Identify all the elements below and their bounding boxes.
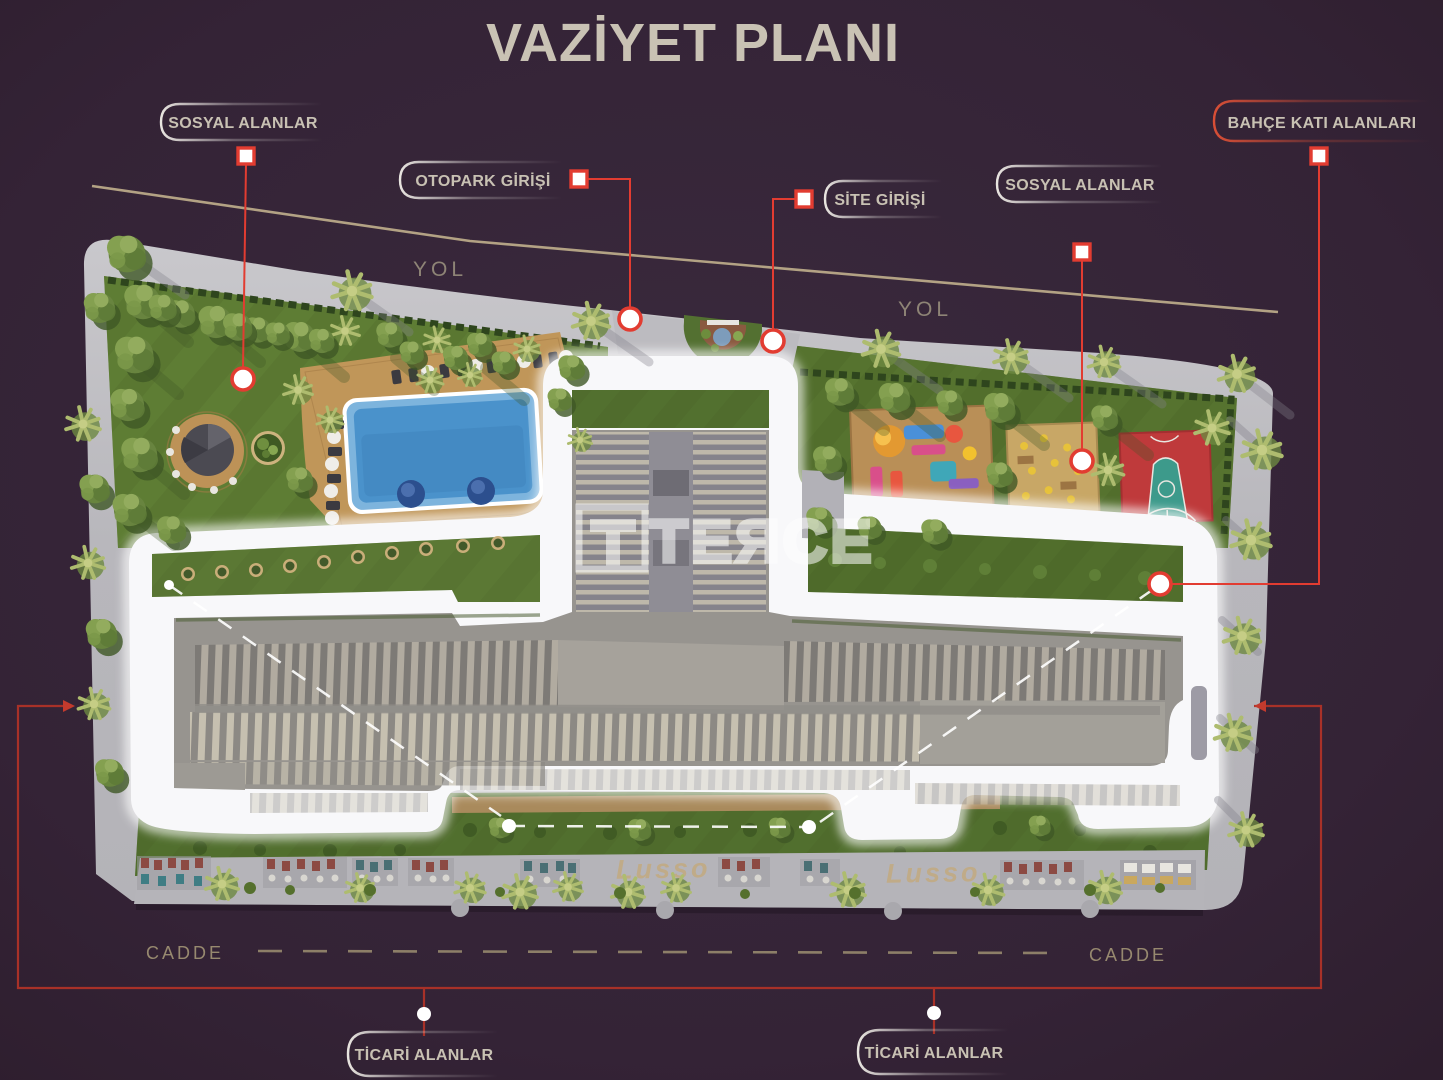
svg-text:SİTE GİRİŞİ: SİTE GİRİŞİ bbox=[834, 191, 925, 209]
svg-text:Lusso: Lusso bbox=[886, 857, 981, 889]
svg-text:TİCARİ ALANLAR: TİCARİ ALANLAR bbox=[355, 1046, 494, 1064]
svg-text:TEЯCE: TEЯCE bbox=[650, 508, 875, 575]
svg-text:OTOPARK GİRİŞİ: OTOPARK GİRİŞİ bbox=[415, 172, 550, 190]
svg-text:YOL: YOL bbox=[898, 298, 952, 321]
svg-text:Lusso: Lusso bbox=[616, 853, 711, 885]
svg-text:TİCARİ ALANLAR: TİCARİ ALANLAR bbox=[865, 1044, 1004, 1062]
svg-text:CADDE: CADDE bbox=[146, 943, 224, 963]
svg-text:VAZİYET PLANI: VAZİYET PLANI bbox=[486, 13, 900, 73]
svg-text:YOL: YOL bbox=[413, 258, 467, 281]
svg-text:BAHÇE KATI ALANLARI: BAHÇE KATI ALANLARI bbox=[1228, 115, 1417, 132]
svg-text:SOSYAL ALANLAR: SOSYAL ALANLAR bbox=[168, 115, 318, 132]
svg-text:SOSYAL ALANLAR: SOSYAL ALANLAR bbox=[1005, 177, 1155, 194]
svg-text:CADDE: CADDE bbox=[1089, 945, 1167, 965]
